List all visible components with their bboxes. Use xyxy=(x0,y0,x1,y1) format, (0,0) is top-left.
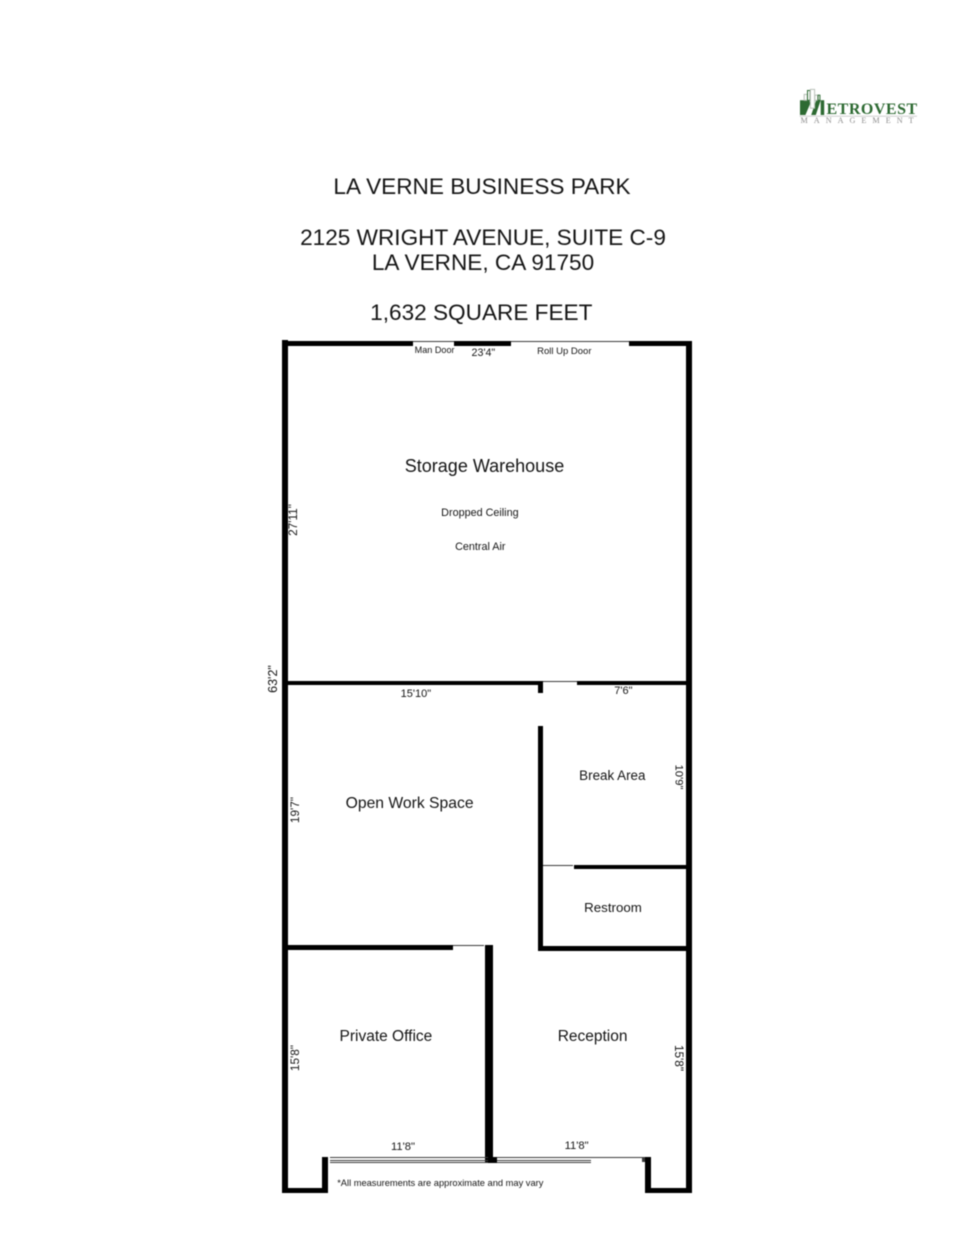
svg-text:MANAGEMENT: MANAGEMENT xyxy=(801,116,920,125)
